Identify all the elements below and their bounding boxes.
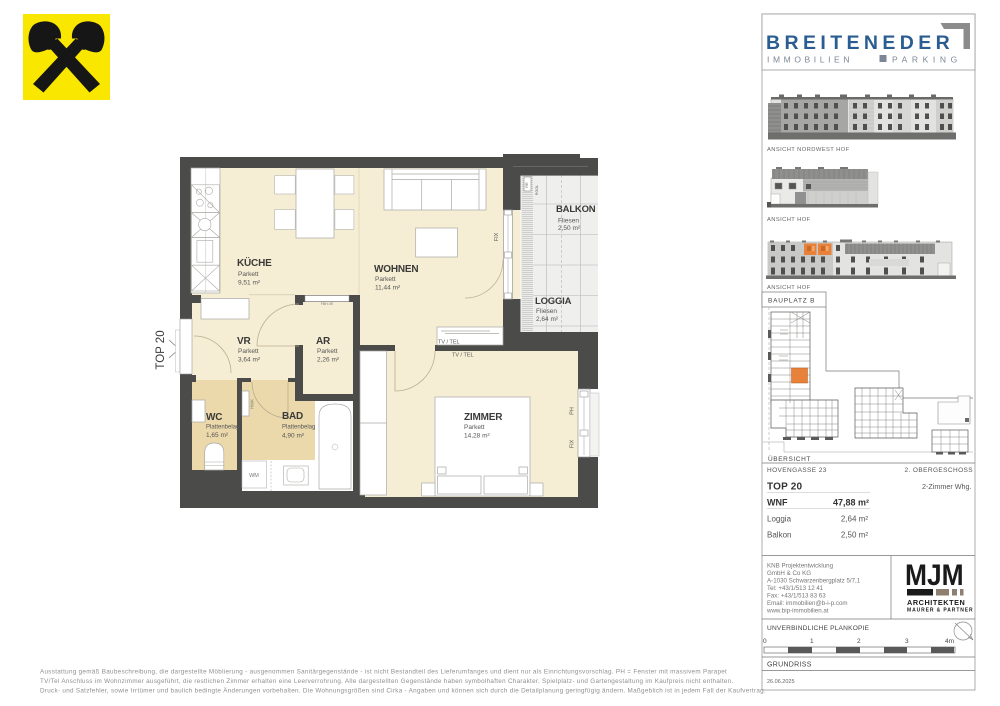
svg-text:BREITENEDER: BREITENEDER bbox=[766, 32, 954, 54]
svg-text:2,26 m²: 2,26 m² bbox=[317, 357, 340, 364]
svg-text:Plattenbelag: Plattenbelag bbox=[206, 425, 239, 431]
svg-text:0: 0 bbox=[763, 638, 767, 645]
svg-text:1: 1 bbox=[810, 638, 814, 645]
svg-text:2: 2 bbox=[857, 638, 861, 645]
svg-text:1,65 m²: 1,65 m² bbox=[206, 432, 229, 439]
svg-text:TOP 20: TOP 20 bbox=[155, 330, 167, 369]
svg-text:WNF: WNF bbox=[767, 498, 788, 508]
svg-text:HOVENGASSE 23: HOVENGASSE 23 bbox=[767, 467, 827, 474]
svg-text:FBH-VE: FBH-VE bbox=[321, 302, 334, 306]
svg-text:TV/Tel Anschluss im Wohnzimmer: TV/Tel Anschluss im Wohnzimmer ausgeführ… bbox=[40, 678, 734, 685]
svg-text:Fliesen: Fliesen bbox=[558, 218, 579, 225]
svg-text:Tel: +43/1/513 12 41: Tel: +43/1/513 12 41 bbox=[767, 585, 824, 592]
svg-text:HWK: HWK bbox=[250, 399, 255, 409]
svg-text:Druck- und Satzfehler, sowie I: Druck- und Satzfehler, sowie Irrtümer un… bbox=[40, 687, 766, 695]
svg-text:UNVERBINDLICHE PLANKOPIE: UNVERBINDLICHE PLANKOPIE bbox=[767, 625, 870, 632]
svg-text:BALKON: BALKON bbox=[556, 204, 596, 215]
svg-text:KNB Projektentwicklung: KNB Projektentwicklung bbox=[767, 563, 834, 570]
svg-text:VR: VR bbox=[237, 336, 251, 347]
svg-text:11,44 m²: 11,44 m² bbox=[375, 285, 401, 292]
svg-text:Plattenbelag: Plattenbelag bbox=[282, 425, 315, 431]
svg-text:PARKING: PARKING bbox=[892, 55, 962, 65]
svg-text:Email: immobilien@b-i-p.com: Email: immobilien@b-i-p.com bbox=[767, 600, 848, 607]
svg-text:LOGGIA: LOGGIA bbox=[535, 296, 572, 307]
svg-text:ANSICHT NORDWEST HOF: ANSICHT NORDWEST HOF bbox=[767, 147, 850, 153]
svg-text:2,50 m²: 2,50 m² bbox=[558, 225, 581, 232]
svg-text:MJM: MJM bbox=[905, 557, 964, 591]
svg-text:4,90 m²: 4,90 m² bbox=[282, 433, 305, 440]
svg-text:GRUNDRISS: GRUNDRISS bbox=[767, 662, 812, 669]
svg-text:WC: WC bbox=[206, 412, 222, 423]
svg-text:Balkon: Balkon bbox=[767, 531, 791, 540]
svg-text:WM: WM bbox=[249, 473, 259, 479]
svg-text:2,64 m²: 2,64 m² bbox=[841, 515, 868, 524]
svg-text:TOP 20: TOP 20 bbox=[767, 482, 803, 493]
svg-text:2,50 m²: 2,50 m² bbox=[841, 531, 868, 540]
svg-text:ÜBERSICHT: ÜBERSICHT bbox=[768, 455, 811, 463]
svg-text:BAD: BAD bbox=[282, 411, 303, 422]
svg-text:2,64 m²: 2,64 m² bbox=[536, 316, 559, 323]
svg-text:2-Zimmer Whg.: 2-Zimmer Whg. bbox=[922, 482, 972, 491]
svg-text:Fax: +43/1/513 83 63: Fax: +43/1/513 83 63 bbox=[767, 593, 826, 600]
svg-text:Parkett: Parkett bbox=[317, 348, 338, 355]
svg-text:2. OBERGESCHOSS: 2. OBERGESCHOSS bbox=[905, 467, 974, 474]
svg-text:Parkett: Parkett bbox=[238, 348, 259, 355]
svg-text:ZIMMER: ZIMMER bbox=[464, 412, 503, 423]
svg-text:IMMOBILIEN: IMMOBILIEN bbox=[767, 55, 853, 65]
svg-text:RGOL: RGOL bbox=[535, 185, 539, 195]
svg-text:BAUPLATZ B: BAUPLATZ B bbox=[768, 298, 815, 305]
svg-text:Parkett: Parkett bbox=[464, 424, 485, 431]
svg-text:TV / TEL: TV / TEL bbox=[452, 353, 474, 359]
svg-text:GmbH & Co KG: GmbH & Co KG bbox=[767, 570, 811, 577]
svg-text:14,28 m²: 14,28 m² bbox=[464, 433, 490, 440]
svg-text:ANSICHT HOF: ANSICHT HOF bbox=[767, 217, 811, 223]
svg-text:4m: 4m bbox=[945, 638, 954, 645]
svg-text:47,88 m²: 47,88 m² bbox=[833, 498, 869, 508]
svg-text:A-1030 Schwarzenbergplatz 5/7,: A-1030 Schwarzenbergplatz 5/7,1 bbox=[767, 578, 861, 585]
svg-text:TV / TEL: TV / TEL bbox=[438, 340, 460, 346]
svg-text:3,64 m²: 3,64 m² bbox=[238, 357, 261, 364]
svg-text:Parkett: Parkett bbox=[375, 276, 396, 283]
svg-text:www.bip-immobilien.at: www.bip-immobilien.at bbox=[766, 608, 829, 615]
svg-text:Loggia: Loggia bbox=[767, 515, 792, 524]
svg-text:Parkett: Parkett bbox=[238, 271, 259, 278]
svg-text:PH: PH bbox=[570, 407, 576, 415]
svg-text:ANSICHT HOF: ANSICHT HOF bbox=[767, 285, 811, 291]
svg-text:KÜCHE: KÜCHE bbox=[237, 256, 272, 269]
svg-text:9,51 m²: 9,51 m² bbox=[238, 280, 261, 287]
svg-text:Ausstattung gemäß Baubeschreib: Ausstattung gemäß Baubeschreibung, die d… bbox=[40, 669, 727, 676]
svg-text:WOHNEN: WOHNEN bbox=[374, 264, 418, 275]
svg-text:RR: RR bbox=[525, 182, 529, 188]
svg-text:AR: AR bbox=[316, 336, 331, 347]
svg-text:FIX: FIX bbox=[570, 439, 576, 448]
svg-text:Fliesen: Fliesen bbox=[536, 308, 557, 315]
svg-text:MAURER & PARTNER: MAURER & PARTNER bbox=[907, 608, 974, 614]
svg-text:ARCHITEKTEN: ARCHITEKTEN bbox=[907, 598, 965, 607]
svg-text:3: 3 bbox=[905, 638, 909, 645]
svg-text:26.06.2025: 26.06.2025 bbox=[767, 679, 795, 685]
svg-text:FIX: FIX bbox=[494, 232, 500, 241]
